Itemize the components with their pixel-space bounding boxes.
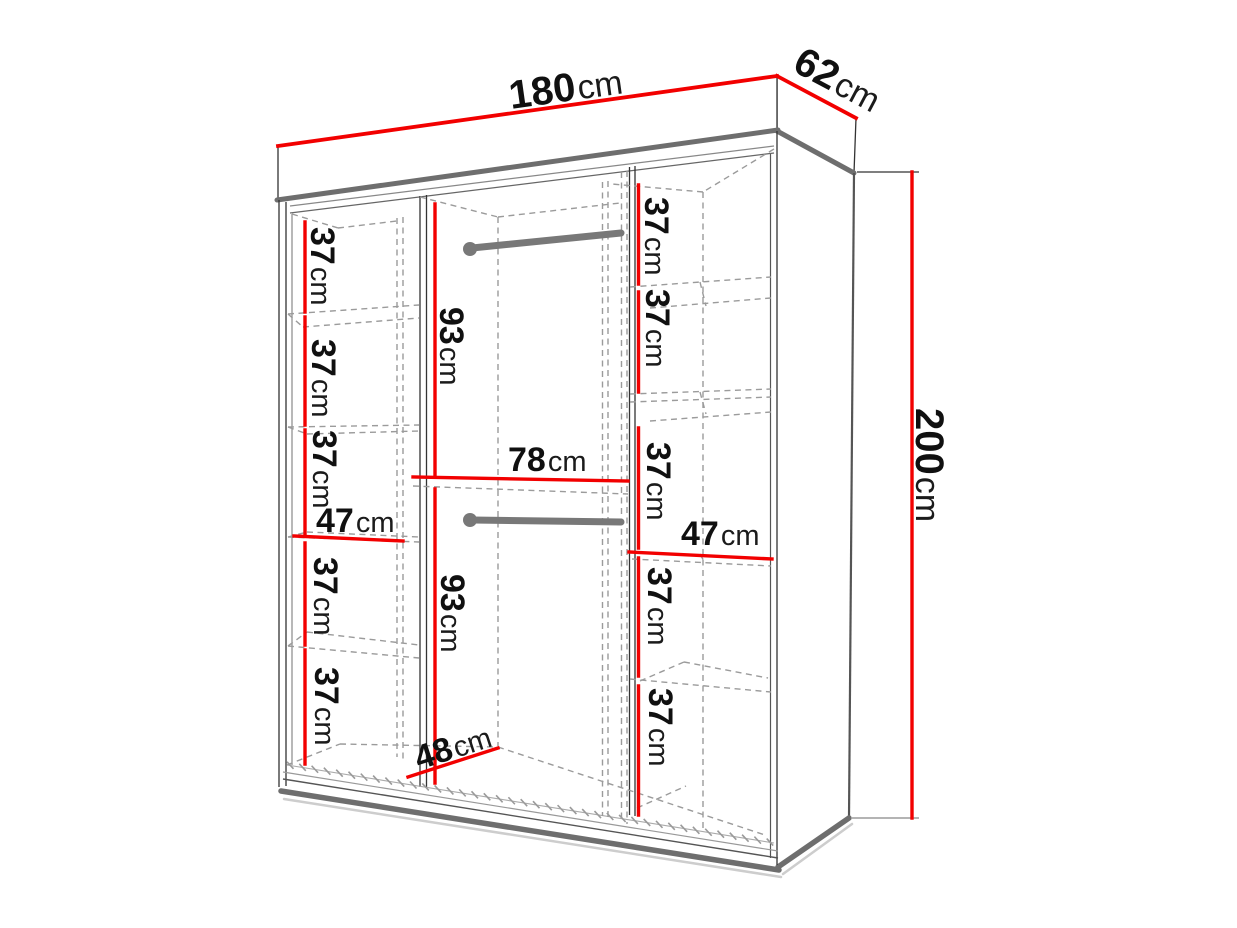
left-shelf-label-2: 37cm <box>304 339 342 418</box>
height-dimension-label: 200cm <box>907 408 951 522</box>
side-panel-face <box>777 131 854 865</box>
left-shelf-label-4: 37cm <box>306 557 344 636</box>
right-shelf-label-3: 37cm <box>639 442 677 521</box>
right-column-width-label: 47cm <box>681 515 760 553</box>
left-shelf-label-1: 37cm <box>303 227 341 306</box>
left-column-width-label: 47cm <box>316 502 395 540</box>
wardrobe-dimension-diagram: 180cm 62cm 200cm 37cm 37cm 37cm 37cm 37c… <box>0 0 1237 928</box>
right-shelf-label-1: 37cm <box>637 197 675 276</box>
upper-hanging-height-label: 93cm <box>432 307 470 386</box>
right-shelf-label-5: 37cm <box>641 688 679 767</box>
inner-width-label: 78cm <box>508 441 587 479</box>
right-shelf-label-4: 37cm <box>640 567 678 646</box>
left-shelf-label-5: 37cm <box>307 667 345 746</box>
left-shelf-label-3: 37cm <box>305 430 343 509</box>
right-shelf-label-2: 37cm <box>638 289 676 368</box>
diagram-canvas: 180cm 62cm 200cm 37cm 37cm 37cm 37cm 37c… <box>0 0 1237 928</box>
lower-hanging-height-label: 93cm <box>433 574 471 653</box>
